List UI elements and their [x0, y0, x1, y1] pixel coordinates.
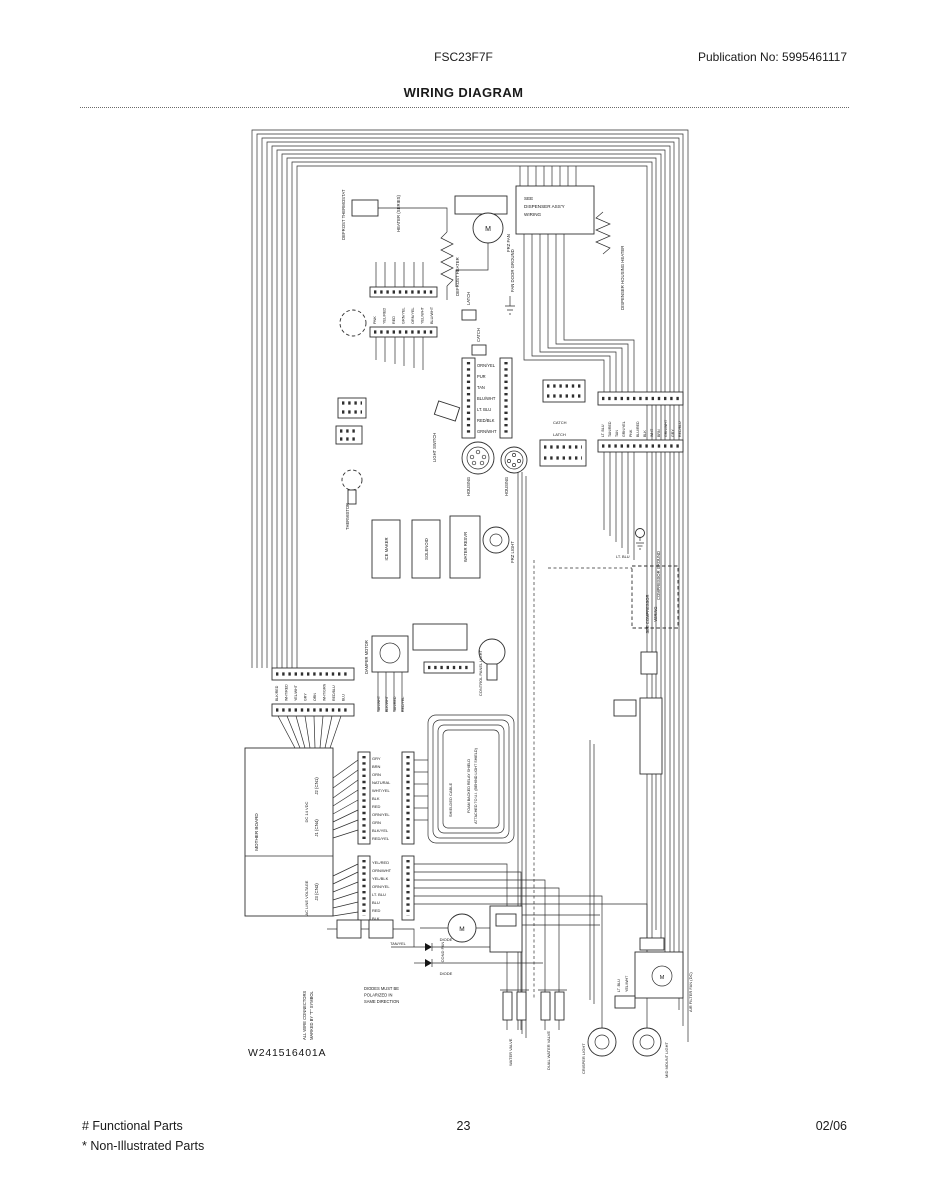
wire-color-label: BLU/WHT	[477, 396, 496, 401]
left-strip-wire-labels: BLK/REDWHT/REDYEL/WHTGRYORNWHT/GRNRED/BL…	[275, 683, 346, 701]
top-strip-wire-labels: PNKYEL/REDREDGRN/YELORN/YELYEL/WHTBLU/WH…	[373, 306, 434, 324]
wire-color-label: BLU	[372, 900, 380, 905]
label-frz-light: FRZ LIGHT	[510, 541, 515, 563]
dispenser-housing-heater: DISPENSER HOUSING HEATER	[596, 212, 625, 310]
label-dispenser-housing-heater: DISPENSER HOUSING HEATER	[620, 246, 625, 310]
label-connector-note-2: MARKED BY "T" SYMBOL	[309, 990, 314, 1040]
wire-color-label: BLK/RED	[275, 685, 279, 701]
wiring-diagram: DEFROST THERMOSTAT HEATER (SERIES) DEFRO…	[0, 0, 927, 1200]
wire-color-label: PUR	[477, 374, 486, 379]
ice-maker-cluster: ICE MAKER SOLENOID WATER RESVR FRZ LIGHT	[372, 516, 515, 578]
wire-color-label: GRN	[372, 820, 381, 825]
motor-letter-cond: M	[459, 926, 464, 933]
damper-wire-labels: TAN/WHTBLK/WHTTAN/REDRED/YEL	[377, 695, 405, 712]
fuse-diodes: DIODE DIODE TAN/YEL DIODES MUST BE POLAR…	[337, 920, 453, 1004]
label-cond-fan: COND FAN	[440, 942, 445, 963]
label-water-resvr: WATER RESVR	[463, 532, 468, 562]
wire-color-label: GRN/WHT	[664, 419, 668, 437]
wire-color-label: BLU/WHT	[430, 306, 434, 324]
part-number: W241516401A	[248, 1047, 326, 1059]
label-dc-voltage: DC 14 VDC	[304, 801, 309, 822]
wire-color-label: TAN/RED	[608, 421, 612, 437]
grid-connectors: CATCH LATCH	[336, 380, 586, 466]
wire-color-label: ORN	[313, 693, 317, 701]
mother-board: MOTHER BOARD J2 (CN1) J1 (CN4) DC 14 VDC…	[245, 748, 333, 916]
label-defrost-thermostat: DEFROST THERMOSTAT	[341, 189, 346, 240]
wire-color-label: NATURAL	[372, 780, 391, 785]
label-housing-1: HOUSING	[466, 477, 471, 496]
label-housing-2: HOUSING	[504, 477, 509, 496]
connector-strip-top: PNKYEL/REDREDGRN/YELORN/YELYEL/WHTBLU/WH…	[370, 287, 437, 337]
light-switch: LIGHT SWITCH	[432, 401, 460, 462]
label-latch: LATCH	[466, 292, 471, 305]
label-water-valve: WATER VALVE	[508, 1038, 513, 1066]
dispenser-assy-box: SEE DISPENSER ASS'Y WIRING	[516, 186, 594, 234]
label-defrost-heater: DEFROST HEATER	[455, 257, 460, 296]
label-solenoid: SOLENOID	[424, 538, 429, 560]
wire-color-label: LT. BLU	[601, 424, 605, 437]
freezer-fan-motor: M FRZ FAN	[455, 196, 511, 252]
wire-color-label: PNK	[373, 316, 377, 324]
manual-page: FSC23F7F Publication No: 5995461117 WIRI…	[0, 0, 927, 1200]
wire-color-label: YEL/BLK	[372, 876, 389, 881]
label-lt-blu-2: LT. BLU	[617, 979, 621, 992]
connector-mid-vertical: ORN/YELPURTANBLU/WHTLT. BLURED/BLKGRN/WH…	[462, 358, 512, 438]
wire-color-label: BLK/YEL	[372, 828, 389, 833]
label-crisper-light: CRISPER LIGHT	[581, 1043, 586, 1074]
wire-color-label: BLK/WHT	[385, 695, 389, 712]
label-j1: J1 (CN4)	[314, 819, 319, 837]
label-foam-note-2: ATTACHED TO U.I. (BEHIND LIGHT SHIELD)	[474, 748, 478, 824]
label-diode-2: DIODE	[440, 971, 453, 976]
page-number: 23	[0, 1119, 927, 1133]
wire-color-label: YEL/WHT	[421, 306, 425, 324]
label-j2: J2 (CN1)	[314, 777, 319, 795]
label-tan-yel: TAN/YEL	[390, 942, 406, 946]
label-j3: J3 (CN3)	[314, 883, 319, 901]
wire-color-label: PNK	[629, 429, 633, 437]
wire-color-label: BLU	[342, 694, 346, 701]
label-mid-mount-light: MID MOUNT LIGHT	[664, 1042, 669, 1078]
wire-color-label: ORN	[372, 772, 381, 777]
label-connector-note-1: ALL WIRE CONNECTORS	[302, 991, 307, 1040]
label-catch: CATCH	[476, 328, 481, 342]
label-thermistor: THERMISTOR	[345, 503, 350, 530]
wire-color-label: WHT/YEL	[372, 788, 391, 793]
label-fan-door-ground: FAN DOOR GROUND	[510, 249, 515, 292]
wire-color-label: RED	[372, 804, 381, 809]
j1-wire-labels: GRYBRNORNNATURALWHT/YELBLKREDORN/YELGRNB…	[372, 756, 391, 841]
wire-color-label: ORN/YEL	[372, 884, 390, 889]
wire-color-label: ORN/YEL	[411, 307, 415, 324]
wire-color-label: GRY	[304, 693, 308, 701]
latch-catch-door: LATCH CATCH	[462, 292, 486, 355]
wire-color-label: YEL/RED	[383, 307, 387, 324]
wire-color-label: GRN/YEL	[402, 307, 406, 324]
wire-color-label: GRY	[372, 756, 381, 761]
footer-non-illustrated-parts: * Non-Illustrated Parts	[82, 1139, 204, 1153]
label-see-dispenser-3: WIRING	[524, 212, 542, 217]
compressor-area: COMPRESSOR GROUND LT. BLU SEE COMPRESSOR…	[614, 529, 678, 775]
wire-color-label: TAN/WHT	[377, 695, 381, 712]
control-board: CONTROL PANEL LIGHT	[413, 624, 505, 696]
wire-color-label: BRN	[372, 764, 381, 769]
wire-color-label: YEL/WHT	[294, 684, 298, 701]
wire-color-label: WHT/GRN	[323, 683, 327, 701]
label-catch-2: CATCH	[553, 420, 567, 425]
label-foam-note-1: FOAM BACKED RELAY SHIELD	[467, 759, 471, 813]
footer-date: 02/06	[816, 1119, 847, 1133]
wire-color-label: GRN/YEL	[622, 421, 626, 437]
defrost-heater: DEFROST HEATER	[441, 232, 460, 300]
diagram-notes: ALL WIRE CONNECTORS MARKED BY "T" SYMBOL…	[248, 990, 326, 1059]
wire-color-label: WHT/RED	[285, 684, 289, 701]
label-shielded-cable: SHIELDED CABLE	[448, 783, 453, 818]
wire-color-label: LT. BLU	[477, 407, 491, 412]
wire-color-label: TAN	[477, 385, 485, 390]
label-air-filter-fan: AIR FILTER FAN (DC)	[688, 972, 693, 1012]
wire-bundle-inner	[278, 166, 652, 1038]
water-valves: WATER VALVE DUAL WATER VALVE	[500, 990, 567, 1070]
j3-connectors: YEL/REDORN/WHTYEL/BLKORN/YELLT. BLUBLURE…	[358, 856, 414, 921]
wire-color-label: BLK	[643, 430, 647, 437]
fan-door-ground: FAN DOOR GROUND	[505, 249, 515, 314]
label-compressor-ground: COMPRESSOR GROUND	[656, 551, 661, 600]
wire-color-label: BLK	[372, 796, 380, 801]
label-ac-line: AC LINE VOLTAGE	[304, 880, 309, 915]
motor-letter-filter: M	[660, 975, 665, 981]
label-diode-note-1: DIODES MUST BE	[364, 986, 399, 991]
wire-color-label: RED	[392, 316, 396, 324]
j3-wire-labels: YEL/REDORN/WHTYEL/BLKORN/YELLT. BLUBLURE…	[372, 860, 392, 921]
thermistor: THERMISTOR	[340, 310, 366, 530]
motor-letter: M	[485, 226, 491, 233]
label-diode-note-2: POLARIZED IN	[364, 993, 392, 998]
wire-color-label: LT. BLU	[372, 892, 386, 897]
wire-color-label: GRN/WHT	[477, 429, 497, 434]
wire-color-label: BRN	[657, 429, 661, 437]
air-filter-fan: M LT. BLU YEL/WHT AIR FILTER FAN (DC)	[615, 938, 693, 1012]
wire-color-label: RED/BLU	[678, 421, 682, 437]
label-heater-series: HEATER (SERIES)	[396, 195, 401, 232]
wire-color-label: ORN/WHT	[372, 868, 392, 873]
label-control-panel-light: CONTROL PANEL LIGHT	[478, 649, 483, 696]
bottom-lamps: CRISPER LIGHT MID MOUNT LIGHT	[581, 1028, 669, 1078]
label-damper-motor: DAMPER MOTOR	[364, 640, 369, 674]
wire-color-label: RED/YEL	[372, 836, 390, 841]
wire-color-label: TAN	[615, 430, 619, 437]
label-yel-wht: YEL/WHT	[625, 975, 629, 992]
defrost-thermostat: DEFROST THERMOSTAT HEATER (SERIES)	[341, 189, 401, 240]
mid-connector-wire-labels: ORN/YELPURTANBLU/WHTLT. BLURED/BLKGRN/WH…	[477, 363, 497, 434]
wire-color-label: WHT	[650, 428, 654, 437]
wire-color-label: ORN/YEL	[372, 812, 390, 817]
wire-color-label: RED/BLK	[477, 418, 495, 423]
label-lt-blu: LT. BLU	[616, 554, 630, 559]
label-dual-water-valve: DUAL WATER VALVE	[546, 1031, 551, 1070]
label-ice-maker: ICE MAKER	[384, 537, 389, 560]
cond-fan: M COND FAN	[440, 906, 522, 962]
wire-color-label: YEL/RED	[372, 860, 389, 865]
label-see-dispenser-2: DISPENSER ASS'Y	[524, 204, 565, 209]
j1-connectors: GRYBRNORNNATURALWHT/YELBLKREDORN/YELGRNB…	[358, 752, 414, 844]
wire-color-label: RED	[372, 908, 381, 913]
label-mother-board: MOTHER BOARD	[254, 813, 259, 851]
label-diode-note-3: SAME DIRECTION	[364, 999, 399, 1004]
wire-color-label: BLU/RED	[636, 421, 640, 437]
label-see-dispenser-1: SEE	[524, 196, 533, 201]
wire-color-label: RED/BLU	[332, 685, 336, 701]
wire-color-label: ORN/YEL	[477, 363, 496, 368]
label-diode-1: DIODE	[440, 937, 453, 942]
shielded-cable-coil: SHIELDED CABLE FOAM BACKED RELAY SHIELD …	[428, 715, 514, 843]
label-see-compressor-1: SEE COMPRESSOR	[645, 595, 650, 634]
wire-color-label: TAN/RED	[393, 696, 397, 712]
housing-connectors: HOUSING HOUSING	[462, 442, 527, 496]
label-see-compressor-2: WIRING	[653, 606, 658, 621]
label-latch-2: LATCH	[553, 432, 566, 437]
connector-strip-left: BLK/REDWHT/REDYEL/WHTGRYORNWHT/GRNRED/BL…	[272, 668, 354, 716]
wire-color-label: GRY	[671, 429, 675, 437]
label-light-switch: LIGHT SWITCH	[432, 433, 437, 462]
wire-color-label: RED/YEL	[401, 697, 405, 712]
